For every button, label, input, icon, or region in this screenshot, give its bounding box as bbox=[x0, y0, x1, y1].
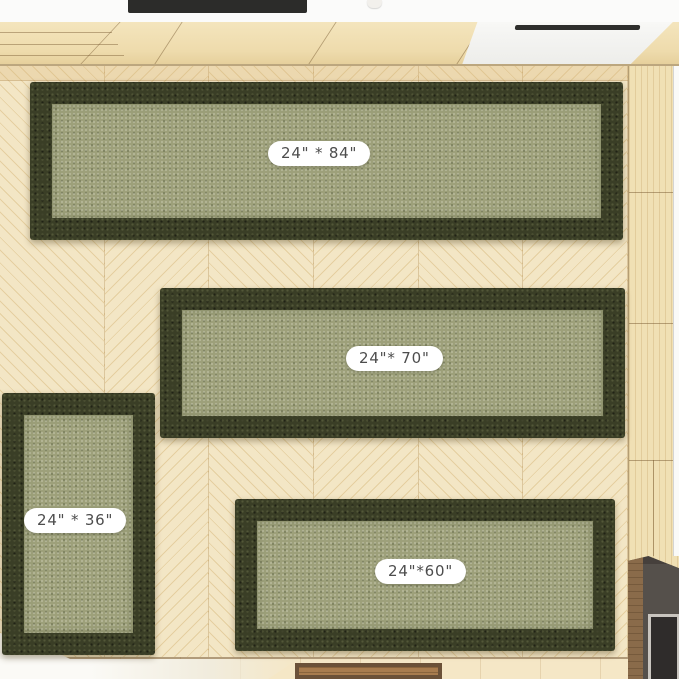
drawer-seam bbox=[0, 55, 124, 56]
size-label-24x36: 24" * 36" bbox=[24, 508, 126, 533]
wall-panel-seam bbox=[629, 192, 675, 193]
fireplace-unit bbox=[628, 556, 679, 679]
cabinet-row bbox=[0, 22, 679, 66]
wall-panel-seam bbox=[653, 460, 654, 556]
wall-panel-seam bbox=[629, 460, 675, 461]
fireplace-wood-side bbox=[628, 556, 643, 679]
drawer-seam bbox=[0, 44, 118, 45]
dishwasher-vent bbox=[515, 25, 641, 30]
cabinet-door-seam bbox=[308, 22, 336, 64]
cooktop bbox=[128, 0, 307, 13]
room-scene: 24" * 84" 24"* 70" 24" * 36" 24"*60" bbox=[0, 0, 679, 679]
fireplace-glass-door bbox=[648, 614, 679, 679]
dishwasher-panel bbox=[458, 22, 674, 64]
size-label-24x84: 24" * 84" bbox=[268, 141, 370, 166]
faucet-base bbox=[367, 0, 382, 8]
size-label-24x60: 24"*60" bbox=[375, 559, 466, 584]
size-label-24x70: 24"* 70" bbox=[346, 346, 443, 371]
wall-panel-seam bbox=[629, 323, 675, 324]
inlaid-doormat bbox=[295, 663, 442, 679]
wall-white-trim bbox=[673, 62, 679, 556]
cabinet-door-seam bbox=[154, 22, 182, 64]
kitchen-counter bbox=[0, 0, 679, 23]
white-mat bbox=[0, 659, 298, 679]
cabinet-corner-seam bbox=[80, 22, 120, 64]
drawer-seam bbox=[0, 32, 112, 33]
floor-edge-shadow bbox=[0, 64, 628, 81]
